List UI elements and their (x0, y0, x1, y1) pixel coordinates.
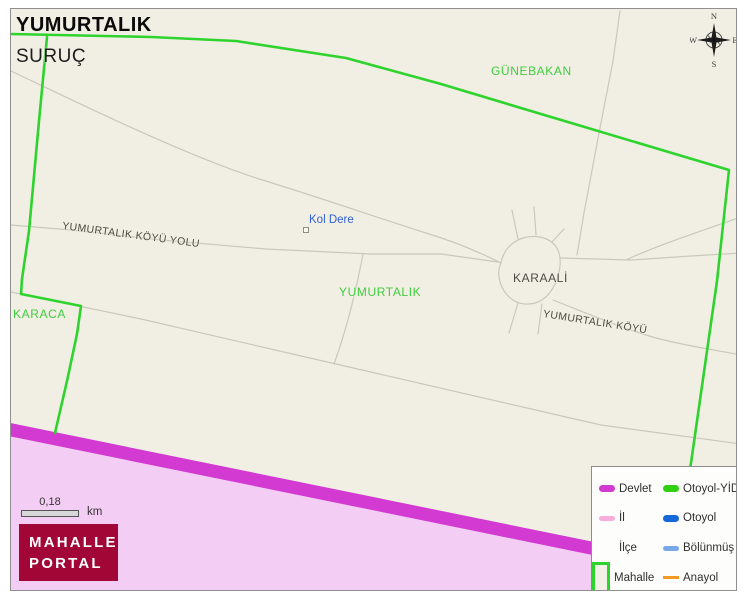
legend-panel: Devlet Otoyol-YİD İl Otoyol İlçe Bölünmü… (591, 466, 737, 591)
legend-item-mahalle: Mahalle (599, 563, 663, 591)
devlet-line-icon (599, 485, 615, 492)
label-karaca: KARACA (13, 307, 66, 321)
map-window: YUMURTALIK SURUÇ GÜNEBAKAN Kol Dere YUMU… (0, 0, 748, 598)
compass-w-label: W (690, 35, 697, 45)
page-subtitle: SURUÇ (16, 46, 86, 68)
scale-unit: km (87, 506, 102, 518)
legend-item-ilce: İlçe (599, 534, 663, 563)
compass-center (712, 38, 715, 41)
compass-rose-icon: N E S W (690, 11, 737, 69)
legend-label: Anayol (683, 572, 718, 584)
otoyol-line-icon (663, 515, 679, 522)
bolunmus-line-icon (663, 546, 679, 551)
scale-bar (21, 510, 79, 517)
otoyol-yid-line-icon (663, 485, 679, 492)
legend-label: Mahalle (614, 572, 654, 584)
label-yumurtalik: YUMURTALIK (339, 285, 421, 299)
legend-label: İlçe (619, 542, 637, 554)
legend-item-bolunmus: Bölünmüş Y (663, 534, 737, 563)
mahalle-box-icon (592, 562, 610, 591)
stream-marker (303, 227, 309, 233)
label-kol-dere: Kol Dere (309, 214, 354, 226)
anayol-line-icon (663, 576, 679, 579)
mahalle-portal-logo: MAHALLE PORTAL (19, 524, 118, 581)
legend-label: Devlet (619, 483, 652, 495)
legend-label: Bölünmüş Y (683, 542, 737, 554)
page-title: YUMURTALIK (16, 14, 152, 37)
il-line-icon (599, 516, 615, 521)
label-karaali: KARAALİ (513, 271, 568, 285)
ilce-line-icon (599, 546, 615, 551)
legend-label: İl (619, 512, 625, 524)
map-frame: YUMURTALIK SURUÇ GÜNEBAKAN Kol Dere YUMU… (10, 8, 737, 591)
legend-item-il: İl (599, 504, 663, 533)
compass-s-label: S (712, 59, 717, 69)
legend-item-devlet: Devlet (599, 474, 663, 503)
legend-label: Otoyol-YİD (683, 483, 737, 495)
legend-item-otoyol: Otoyol (663, 504, 737, 533)
compass-e-label: E (732, 35, 737, 45)
label-gunebakan: GÜNEBAKAN (491, 64, 572, 78)
legend-item-otoyol-yid: Otoyol-YİD (663, 474, 737, 503)
legend-label: Otoyol (683, 512, 716, 524)
logo-line1: MAHALLE (29, 532, 118, 553)
legend-item-anayol: Anayol (663, 563, 737, 591)
compass-n-label: N (711, 11, 717, 21)
scale-distance: 0,18 (21, 496, 79, 508)
logo-line2: PORTAL (29, 553, 118, 574)
